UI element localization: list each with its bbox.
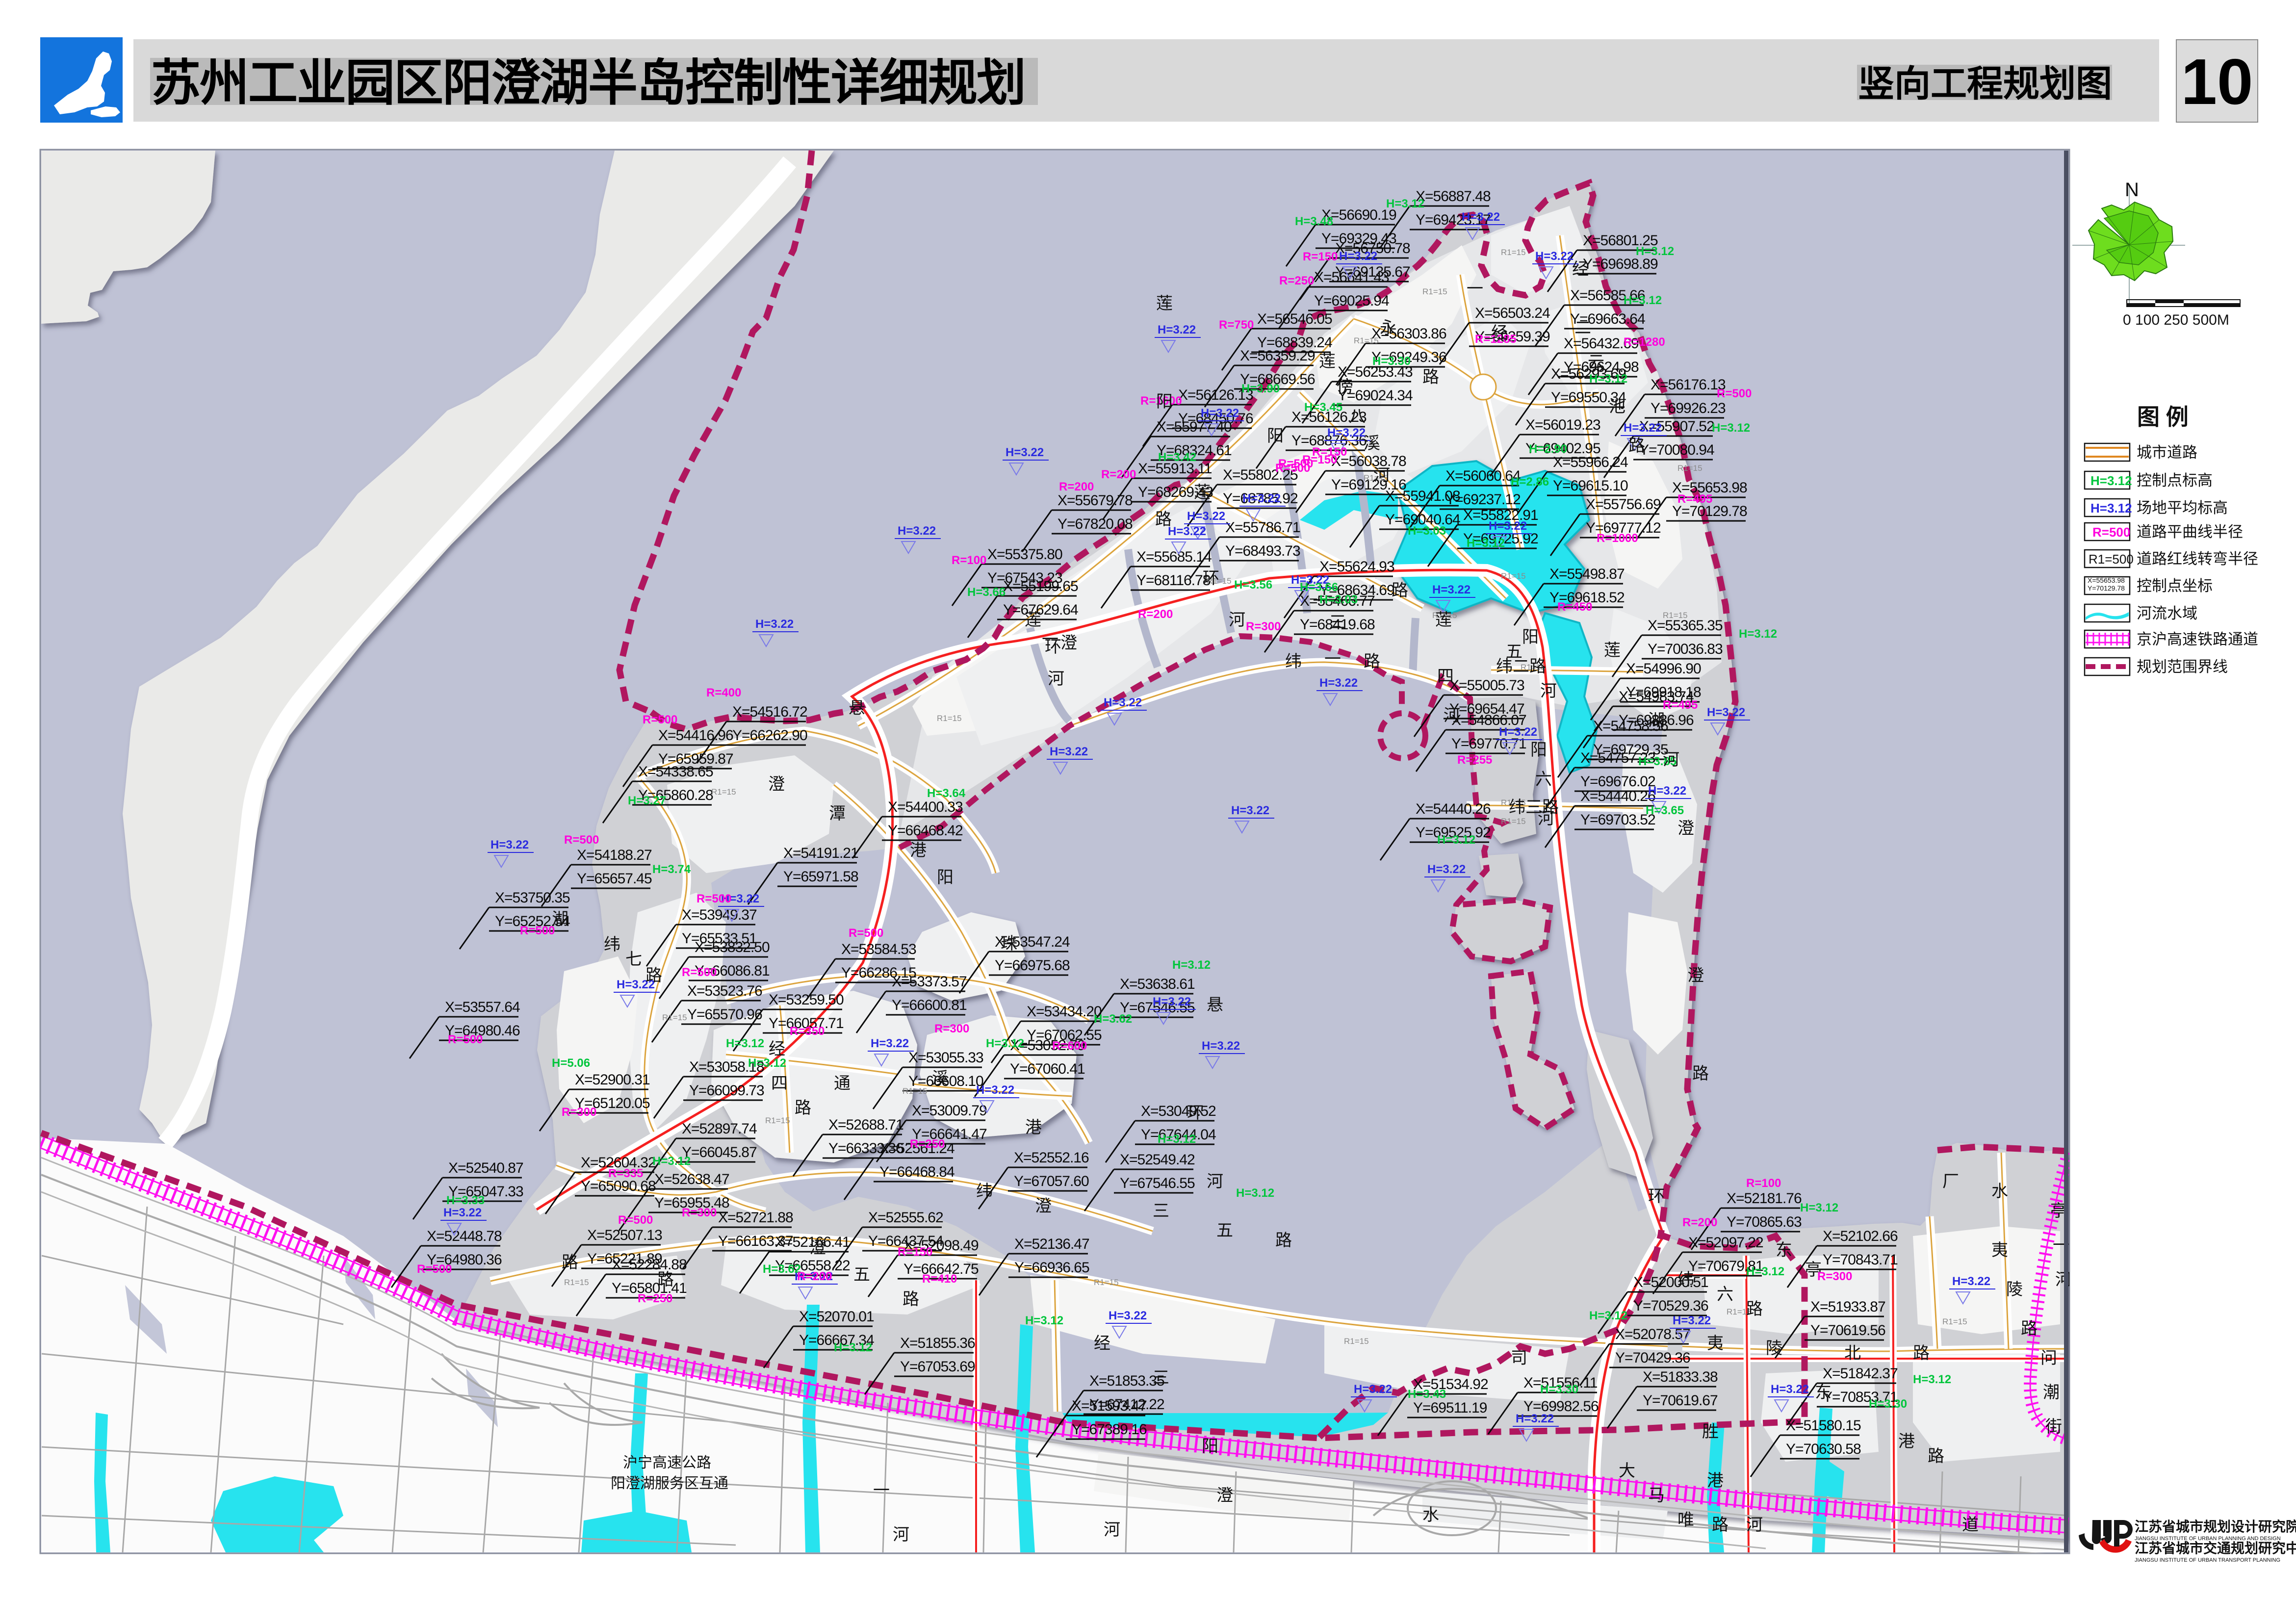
svg-text:R1=15: R1=15 [662, 1013, 687, 1022]
svg-text:通: 通 [834, 1074, 851, 1093]
svg-text:纬: 纬 [1285, 652, 1302, 671]
svg-text:七: 七 [625, 950, 642, 969]
svg-text:经: 经 [1094, 1334, 1110, 1353]
svg-text:H=3.64: H=3.64 [927, 787, 966, 800]
svg-text:H=3.12: H=3.12 [1172, 958, 1211, 972]
svg-text:H=3.22: H=3.22 [755, 618, 794, 631]
svg-text:R1=15: R1=15 [1501, 817, 1526, 826]
svg-text:H=3.12: H=3.12 [1712, 421, 1750, 435]
svg-text:水: 水 [1991, 1182, 2008, 1201]
svg-text:X=54400.33: X=54400.33 [888, 799, 963, 815]
svg-text:R=1000: R=1000 [1597, 532, 1638, 545]
svg-text:H=3.22: H=3.22 [1319, 676, 1358, 690]
svg-text:X=53259.50: X=53259.50 [769, 992, 844, 1008]
svg-text:R1=15: R1=15 [1422, 287, 1447, 296]
svg-text:R1=15: R1=15 [1663, 611, 1688, 620]
svg-text:河: 河 [1444, 706, 1460, 725]
svg-text:X=52070.01: X=52070.01 [799, 1309, 874, 1325]
svg-text:X=52181.76: X=52181.76 [1727, 1190, 1802, 1207]
svg-text:河: 河 [1104, 1521, 1120, 1539]
svg-text:R1=500: R1=500 [2089, 552, 2134, 567]
svg-text:X=53638.61: X=53638.61 [1120, 976, 1195, 992]
svg-text:H=3.22: H=3.22 [1771, 1383, 1809, 1396]
svg-text:R=335: R=335 [608, 1167, 643, 1180]
svg-text:Y=70529.36: Y=70529.36 [1633, 1298, 1708, 1314]
svg-text:H=3.12: H=3.12 [1913, 1373, 1951, 1386]
svg-text:阳: 阳 [1522, 628, 1539, 646]
svg-text:X=56641.43: X=56641.43 [1314, 269, 1389, 285]
svg-text:一: 一 [873, 1481, 890, 1500]
svg-text:东: 东 [1815, 1383, 1832, 1402]
svg-text:H=3.12: H=3.12 [1636, 245, 1674, 258]
svg-text:湖: 湖 [1648, 711, 1665, 730]
svg-text:六: 六 [1535, 770, 1552, 789]
svg-text:R=500: R=500 [520, 924, 555, 937]
svg-text:X=54440.26: X=54440.26 [1580, 788, 1655, 804]
svg-text:H=3.22: H=3.22 [1201, 407, 1239, 420]
svg-text:H=3.22: H=3.22 [1462, 210, 1500, 224]
svg-text:H=3.12: H=3.12 [2090, 473, 2132, 488]
svg-text:H=5.06: H=5.06 [552, 1057, 590, 1070]
svg-text:珠: 珠 [1001, 934, 1017, 953]
svg-text:溪: 溪 [1364, 434, 1380, 453]
svg-text:H=3.62: H=3.62 [763, 1263, 801, 1276]
svg-text:R=500: R=500 [618, 1213, 653, 1227]
svg-text:河: 河 [893, 1525, 909, 1544]
svg-text:X=55685.14: X=55685.14 [1136, 549, 1212, 565]
svg-text:X=54191.21: X=54191.21 [783, 845, 858, 861]
svg-text:陵: 陵 [1766, 1339, 1782, 1358]
svg-text:道路红线转弯半径: 道路红线转弯半径 [2137, 550, 2258, 567]
svg-text:H=3.22: H=3.22 [1006, 446, 1044, 459]
svg-text:路: 路 [1275, 1231, 1292, 1250]
svg-text:H=3.22: H=3.22 [1516, 1412, 1554, 1425]
svg-text:H=3.12: H=3.12 [1236, 1186, 1274, 1200]
svg-text:纬二路: 纬二路 [1496, 657, 1546, 676]
svg-text:路: 路 [1392, 581, 1408, 600]
svg-text:H=3.22: H=3.22 [1104, 696, 1142, 709]
svg-text:厂: 厂 [1942, 1172, 1959, 1191]
svg-text:R=500: R=500 [643, 713, 677, 726]
svg-text:X=55199.65: X=55199.65 [1003, 578, 1078, 594]
svg-text:夷: 夷 [1707, 1334, 1724, 1353]
svg-text:H=3.22: H=3.22 [1427, 863, 1466, 876]
svg-text:X=51842.37: X=51842.37 [1823, 1366, 1898, 1382]
svg-text:H=3.12: H=3.12 [748, 1057, 786, 1070]
svg-text:Y=69698.89: Y=69698.89 [1583, 256, 1658, 272]
svg-text:Y=69926.23: Y=69926.23 [1651, 400, 1726, 416]
svg-text:八: 八 [1349, 407, 1366, 426]
svg-text:三: 三 [1153, 1202, 1169, 1220]
svg-text:H=3.22: H=3.22 [1202, 1039, 1240, 1053]
svg-text:R=250: R=250 [910, 1137, 945, 1151]
svg-text:潭: 潭 [829, 804, 846, 823]
svg-text:X=52721.88: X=52721.88 [718, 1210, 793, 1226]
svg-text:X=55679.78: X=55679.78 [1058, 492, 1133, 509]
svg-text:街: 街 [2045, 1418, 2062, 1436]
svg-text:H=3.22: H=3.22 [898, 524, 936, 538]
svg-text:X=51933.87: X=51933.87 [1810, 1299, 1885, 1315]
svg-text:H=3.12: H=3.12 [1025, 1314, 1063, 1327]
svg-text:R=500: R=500 [2092, 525, 2130, 540]
svg-text:陵: 陵 [2006, 1280, 2023, 1299]
svg-text:R=300: R=300 [682, 1206, 717, 1219]
svg-text:H=3.22: H=3.22 [1158, 323, 1196, 336]
svg-text:X=52555.62: X=52555.62 [868, 1210, 943, 1226]
svg-text:三: 三 [1329, 613, 1346, 632]
svg-text:Y=70429.36: Y=70429.36 [1615, 1350, 1690, 1366]
svg-text:R=400: R=400 [706, 686, 741, 699]
svg-text:X=53055.33: X=53055.33 [908, 1050, 983, 1066]
svg-text:R1=15: R1=15 [1942, 1317, 1967, 1326]
svg-text:Y=67053.69: Y=67053.69 [900, 1359, 975, 1375]
svg-text:路: 路 [1692, 1064, 1709, 1083]
svg-text:R=495: R=495 [1677, 492, 1712, 506]
svg-text:R=150: R=150 [898, 1245, 932, 1259]
svg-text:H=3.12: H=3.12 [1589, 1309, 1627, 1322]
svg-text:问: 问 [2040, 1349, 2057, 1367]
svg-text:H=3.03: H=3.03 [1408, 524, 1446, 538]
svg-text:H=3.33: H=3.33 [446, 1194, 485, 1207]
svg-text:澄: 澄 [809, 1238, 826, 1257]
svg-text:悬: 悬 [1207, 996, 1223, 1014]
svg-text:0 100 250 500M: 0 100 250 500M [2123, 312, 2229, 328]
svg-text:河: 河 [1207, 1172, 1223, 1191]
svg-text:X=52540.87: X=52540.87 [448, 1160, 523, 1176]
svg-text:H=3.22: H=3.22 [1231, 804, 1269, 817]
svg-text:X=53523.76: X=53523.76 [687, 983, 762, 999]
svg-text:河流水域: 河流水域 [2137, 605, 2197, 622]
svg-text:Y=70619.56: Y=70619.56 [1810, 1322, 1885, 1339]
svg-text:H=3.22: H=3.22 [1050, 745, 1088, 758]
svg-text:水: 水 [1422, 1506, 1439, 1524]
svg-text:X=53557.64: X=53557.64 [445, 999, 520, 1015]
svg-text:R=500: R=500 [682, 966, 717, 979]
svg-text:环: 环 [1203, 569, 1219, 588]
svg-text:X=52448.78: X=52448.78 [427, 1228, 502, 1244]
svg-text:路: 路 [1712, 1516, 1728, 1534]
svg-text:H=3.30: H=3.30 [1540, 1383, 1578, 1396]
svg-text:R=200: R=200 [797, 1270, 832, 1283]
svg-text:R1=15: R1=15 [1094, 1278, 1119, 1287]
svg-text:阳: 阳 [937, 868, 954, 887]
svg-text:R=410: R=410 [922, 1272, 957, 1286]
svg-text:H=3.22: H=3.22 [1339, 250, 1377, 263]
svg-text:东: 东 [1776, 1241, 1792, 1260]
svg-text:R=500: R=500 [417, 1263, 452, 1276]
svg-text:R1=15: R1=15 [765, 1116, 790, 1125]
svg-text:N: N [2125, 179, 2139, 201]
svg-text:X=54516.72: X=54516.72 [732, 704, 807, 720]
svg-text:X=54416.96: X=54416.96 [658, 727, 733, 744]
svg-text:R=150: R=150 [1303, 250, 1338, 263]
svg-text:X=53049.52: X=53049.52 [1141, 1103, 1216, 1119]
svg-text:经: 经 [769, 1040, 785, 1058]
svg-text:莲: 莲 [1435, 611, 1452, 629]
svg-text:亭: 亭 [1805, 1261, 1822, 1279]
svg-text:Y=70080.94: Y=70080.94 [1639, 442, 1714, 458]
svg-text:澄: 澄 [1060, 634, 1077, 652]
svg-text:H=3.12: H=3.12 [1746, 1265, 1784, 1278]
svg-text:马: 马 [1648, 1486, 1665, 1505]
svg-text:规划范围界线: 规划范围界线 [2137, 658, 2228, 675]
svg-text:H=3.22: H=3.22 [1535, 250, 1574, 263]
svg-text:道: 道 [1962, 1516, 1979, 1534]
svg-text:H=3.66: H=3.66 [967, 586, 1006, 599]
svg-text:X=56176.13: X=56176.13 [1651, 377, 1726, 393]
svg-text:Y=70036.83: Y=70036.83 [1648, 641, 1723, 657]
svg-text:H=3.12: H=3.12 [1624, 294, 1662, 307]
svg-text:Y=65657.45: Y=65657.45 [577, 871, 652, 887]
svg-text:阳: 阳 [1202, 1437, 1218, 1456]
svg-text:H=3.22: H=3.22 [1673, 1314, 1711, 1327]
svg-text:Y=66045.87: Y=66045.87 [682, 1144, 757, 1160]
svg-text:Y=65971.58: Y=65971.58 [783, 869, 858, 885]
svg-text:路: 路 [1155, 510, 1172, 529]
svg-text:H=3.22: H=3.22 [1168, 525, 1206, 538]
svg-text:X=54440.26: X=54440.26 [1416, 801, 1491, 817]
svg-text:R=300: R=300 [562, 1106, 596, 1119]
svg-text:Y=66468.84: Y=66468.84 [879, 1164, 955, 1180]
svg-text:X=53584.53: X=53584.53 [841, 941, 916, 957]
svg-text:Y=67412.22: Y=67412.22 [1089, 1396, 1164, 1413]
svg-text:Y=70619.67: Y=70619.67 [1643, 1392, 1718, 1409]
svg-text:H=3.22: H=3.22 [1432, 583, 1470, 596]
svg-text:R=495: R=495 [1663, 698, 1698, 712]
svg-text:X=56359.29: X=56359.29 [1240, 348, 1315, 364]
svg-text:河: 河 [2055, 1270, 2072, 1289]
svg-text:X=54188.27: X=54188.27 [577, 847, 652, 863]
svg-text:R=500: R=500 [697, 892, 731, 905]
svg-text:H=3.12: H=3.12 [1437, 833, 1475, 847]
svg-text:X=56546.05: X=56546.05 [1257, 311, 1332, 327]
svg-text:X=53832.50: X=53832.50 [695, 939, 770, 955]
svg-text:H=3.12: H=3.12 [834, 1341, 872, 1354]
svg-text:X=52552.16: X=52552.16 [1014, 1150, 1089, 1166]
svg-text:潮: 潮 [2043, 1383, 2060, 1402]
svg-text:港: 港 [1025, 1118, 1042, 1137]
svg-text:司: 司 [1511, 1349, 1527, 1367]
svg-text:H=3.12: H=3.12 [1800, 1201, 1838, 1214]
svg-text:路: 路 [903, 1290, 919, 1309]
svg-text:X=52638.47: X=52638.47 [654, 1171, 729, 1187]
svg-text:X=52900.31: X=52900.31 [575, 1072, 650, 1088]
svg-text:H=3.22: H=3.22 [1327, 426, 1366, 439]
svg-text:Y=66262.90: Y=66262.90 [732, 727, 807, 744]
svg-text:X=52102.66: X=52102.66 [1823, 1228, 1898, 1244]
svg-text:R=200: R=200 [1682, 1216, 1717, 1229]
svg-text:环: 环 [1648, 1187, 1665, 1206]
svg-text:X=56503.24: X=56503.24 [1475, 305, 1550, 321]
svg-text:澄: 澄 [1677, 819, 1694, 838]
svg-text:H=3.74: H=3.74 [652, 863, 691, 876]
svg-text:X=51855.36: X=51855.36 [900, 1335, 975, 1351]
svg-text:R=500: R=500 [448, 1033, 483, 1046]
svg-text:R1=15: R1=15 [937, 714, 962, 723]
svg-text:大: 大 [1619, 1462, 1635, 1480]
svg-text:H=3.12: H=3.12 [986, 1037, 1024, 1050]
svg-text:溪: 溪 [932, 1069, 949, 1088]
svg-text:苏州工业园区阳澄湖半岛控制性详细规划: 苏州工业园区阳澄湖半岛控制性详细规划 [151, 56, 1025, 111]
svg-text:R=300: R=300 [1246, 620, 1281, 633]
svg-text:北: 北 [1844, 1344, 1861, 1363]
svg-text:路: 路 [657, 1270, 674, 1289]
svg-text:H=3.48: H=3.48 [1295, 215, 1333, 228]
svg-text:H=3.12: H=3.12 [1467, 537, 1505, 550]
svg-text:Y=66099.73: Y=66099.73 [689, 1083, 764, 1099]
svg-text:Y=70630.58: Y=70630.58 [1786, 1441, 1861, 1457]
svg-text:河: 河 [1373, 466, 1390, 485]
svg-text:H=3.22: H=3.22 [871, 1037, 909, 1050]
svg-text:X=56887.48: X=56887.48 [1416, 188, 1491, 205]
svg-text:路: 路 [562, 1253, 578, 1272]
svg-text:X=55756.69: X=55756.69 [1586, 496, 1661, 513]
svg-text:H=3.56: H=3.56 [1234, 578, 1272, 592]
svg-text:江苏省城市规划设计研究院: 江苏省城市规划设计研究院 [2135, 1519, 2296, 1534]
svg-text:R=750: R=750 [1219, 318, 1254, 332]
svg-text:H=3.65: H=3.65 [1646, 804, 1684, 817]
svg-text:路: 路 [645, 966, 662, 985]
svg-text:R=300: R=300 [1817, 1270, 1852, 1283]
svg-text:Y=67389.16: Y=67389.16 [1072, 1421, 1147, 1438]
svg-text:H=3.22: H=3.22 [1499, 725, 1537, 739]
svg-text:Y=70843.71: Y=70843.71 [1823, 1252, 1898, 1268]
svg-text:X=53009.79: X=53009.79 [912, 1103, 987, 1119]
svg-text:R=450: R=450 [1557, 600, 1592, 614]
svg-text:X=53373.57: X=53373.57 [892, 974, 967, 990]
svg-text:H=3.42: H=3.42 [1158, 451, 1196, 464]
svg-text:X=53750.35: X=53750.35 [495, 890, 570, 906]
svg-text:Y=69511.19: Y=69511.19 [1413, 1400, 1487, 1416]
svg-text:R=500: R=500 [1717, 387, 1752, 400]
svg-text:X=55375.80: X=55375.80 [987, 546, 1062, 563]
svg-text:经: 经 [1491, 324, 1508, 342]
svg-text:河: 河 [1746, 1516, 1763, 1534]
svg-text:X=54996.90: X=54996.90 [1626, 661, 1701, 677]
svg-text:Y=67060.41: Y=67060.41 [1010, 1061, 1085, 1077]
svg-text:控制点坐标: 控制点坐标 [2137, 577, 2213, 594]
svg-text:H=3.22: H=3.22 [1153, 995, 1191, 1008]
svg-text:H=3.22: H=3.22 [443, 1206, 482, 1219]
svg-text:夷: 夷 [1991, 1241, 2008, 1260]
svg-text:H=3.22: H=3.22 [1952, 1275, 1990, 1288]
svg-text:X=56019.23: X=56019.23 [1525, 417, 1600, 433]
svg-text:莲: 莲 [1604, 641, 1621, 660]
svg-text:三: 三 [1153, 1368, 1169, 1387]
svg-text:H=3.43: H=3.43 [1408, 1388, 1446, 1401]
svg-text:一: 一 [1467, 280, 1483, 298]
svg-text:X=55005.73: X=55005.73 [1449, 677, 1524, 694]
svg-text:H=3.22: H=3.22 [1109, 1309, 1147, 1322]
svg-text:X=54338.65: X=54338.65 [638, 764, 713, 780]
svg-text:Y=69615.10: Y=69615.10 [1553, 478, 1628, 494]
svg-text:H=3.03: H=3.03 [1319, 593, 1358, 606]
svg-text:X=52000.51: X=52000.51 [1633, 1274, 1708, 1290]
svg-text:图 例: 图 例 [2137, 404, 2189, 430]
svg-text:阳: 阳 [1267, 427, 1284, 445]
svg-text:澄: 澄 [1687, 966, 1704, 985]
svg-text:R1=15: R1=15 [903, 1086, 928, 1096]
svg-text:路: 路 [1422, 368, 1439, 387]
svg-text:H=3.22: H=3.22 [976, 1083, 1014, 1097]
svg-text:胜: 胜 [1702, 1422, 1719, 1441]
svg-text:竖向工程规划图: 竖向工程规划图 [1858, 63, 2112, 104]
svg-text:港: 港 [910, 841, 927, 860]
svg-text:Y=70865.63: Y=70865.63 [1727, 1214, 1802, 1230]
svg-text:H=3.90: H=3.90 [1241, 382, 1280, 395]
svg-text:莲: 莲 [1319, 352, 1336, 371]
svg-text:Y=69025.94: Y=69025.94 [1314, 293, 1389, 309]
svg-text:R=250: R=250 [1279, 274, 1314, 287]
svg-text:R=150: R=150 [1312, 445, 1347, 459]
svg-text:R1=15: R1=15 [1344, 1337, 1369, 1346]
svg-text:H=3.22: H=3.22 [1187, 510, 1225, 523]
svg-text:五: 五 [1216, 1221, 1233, 1240]
svg-text:H=3.12: H=3.12 [1739, 627, 1777, 641]
svg-text:澄: 澄 [768, 775, 785, 794]
svg-text:10: 10 [2181, 46, 2253, 118]
svg-text:H=3.22: H=3.22 [1354, 1383, 1392, 1396]
svg-text:池: 池 [1609, 397, 1625, 416]
svg-text:Y=68493.73: Y=68493.73 [1225, 543, 1300, 559]
svg-text:Y=66975.68: Y=66975.68 [995, 957, 1070, 974]
svg-text:河: 河 [1229, 611, 1245, 629]
svg-text:R=100: R=100 [952, 554, 986, 567]
svg-text:Y=68116.78: Y=68116.78 [1136, 572, 1211, 589]
svg-text:R=1280: R=1280 [1624, 335, 1665, 349]
svg-text:R=350: R=350 [790, 1025, 825, 1038]
svg-text:H=3.22: H=3.22 [1648, 784, 1686, 798]
svg-text:Y=69703.52: Y=69703.52 [1580, 812, 1655, 828]
svg-text:Y=67546.55: Y=67546.55 [1120, 1175, 1195, 1191]
svg-text:悬: 悬 [849, 699, 865, 718]
svg-text:H=3.12: H=3.12 [2090, 501, 2132, 516]
svg-text:X=55786.71: X=55786.71 [1225, 519, 1300, 536]
svg-text:X=51580.15: X=51580.15 [1786, 1418, 1861, 1434]
svg-text:JIANGSU INSTITUTE OF URBAN TRA: JIANGSU INSTITUTE OF URBAN TRANSPORT PLA… [2135, 1557, 2280, 1563]
svg-text:Y=66936.65: Y=66936.65 [1014, 1260, 1089, 1276]
svg-text:四: 四 [771, 1074, 788, 1093]
svg-text:纬: 纬 [976, 1182, 993, 1201]
svg-text:X=55653.98: X=55653.98 [2088, 576, 2125, 584]
svg-text:H=3.12: H=3.12 [1589, 372, 1627, 386]
svg-text:H=3.12: H=3.12 [1158, 1133, 1196, 1146]
svg-text:江苏省城市交通规划研究中心: 江苏省城市交通规划研究中心 [2135, 1540, 2296, 1556]
svg-text:X=55966.24: X=55966.24 [1553, 454, 1628, 470]
svg-text:R=600: R=600 [1052, 1039, 1087, 1053]
svg-text:纬: 纬 [604, 935, 620, 954]
svg-text:R=500: R=500 [849, 927, 883, 940]
svg-text:Y=69676.02: Y=69676.02 [1580, 773, 1655, 790]
svg-text:路: 路 [795, 1099, 811, 1117]
svg-text:H=3.22: H=3.22 [1707, 706, 1745, 719]
svg-text:河: 河 [1663, 750, 1679, 769]
svg-text:X=53949.37: X=53949.37 [682, 907, 757, 923]
svg-text:H=3.22: H=3.22 [1489, 519, 1527, 533]
svg-text:一: 一 [1324, 650, 1341, 669]
svg-text:X=53434.20: X=53434.20 [1027, 1004, 1102, 1020]
svg-text:H=3.12: H=3.12 [652, 1155, 691, 1168]
svg-text:云: 云 [1588, 353, 1604, 372]
svg-text:R1=15: R1=15 [564, 1278, 589, 1287]
svg-text:H=3.62: H=3.62 [1094, 1012, 1132, 1026]
svg-text:道路平曲线半径: 道路平曲线半径 [2137, 523, 2243, 541]
svg-text:R1=15: R1=15 [711, 787, 736, 797]
svg-text:沪宁高速公路: 沪宁高速公路 [623, 1455, 711, 1471]
svg-text:场地平均标高: 场地平均标高 [2137, 499, 2228, 516]
svg-text:阳: 阳 [1530, 741, 1547, 759]
svg-text:H=3.22: H=3.22 [490, 838, 529, 851]
